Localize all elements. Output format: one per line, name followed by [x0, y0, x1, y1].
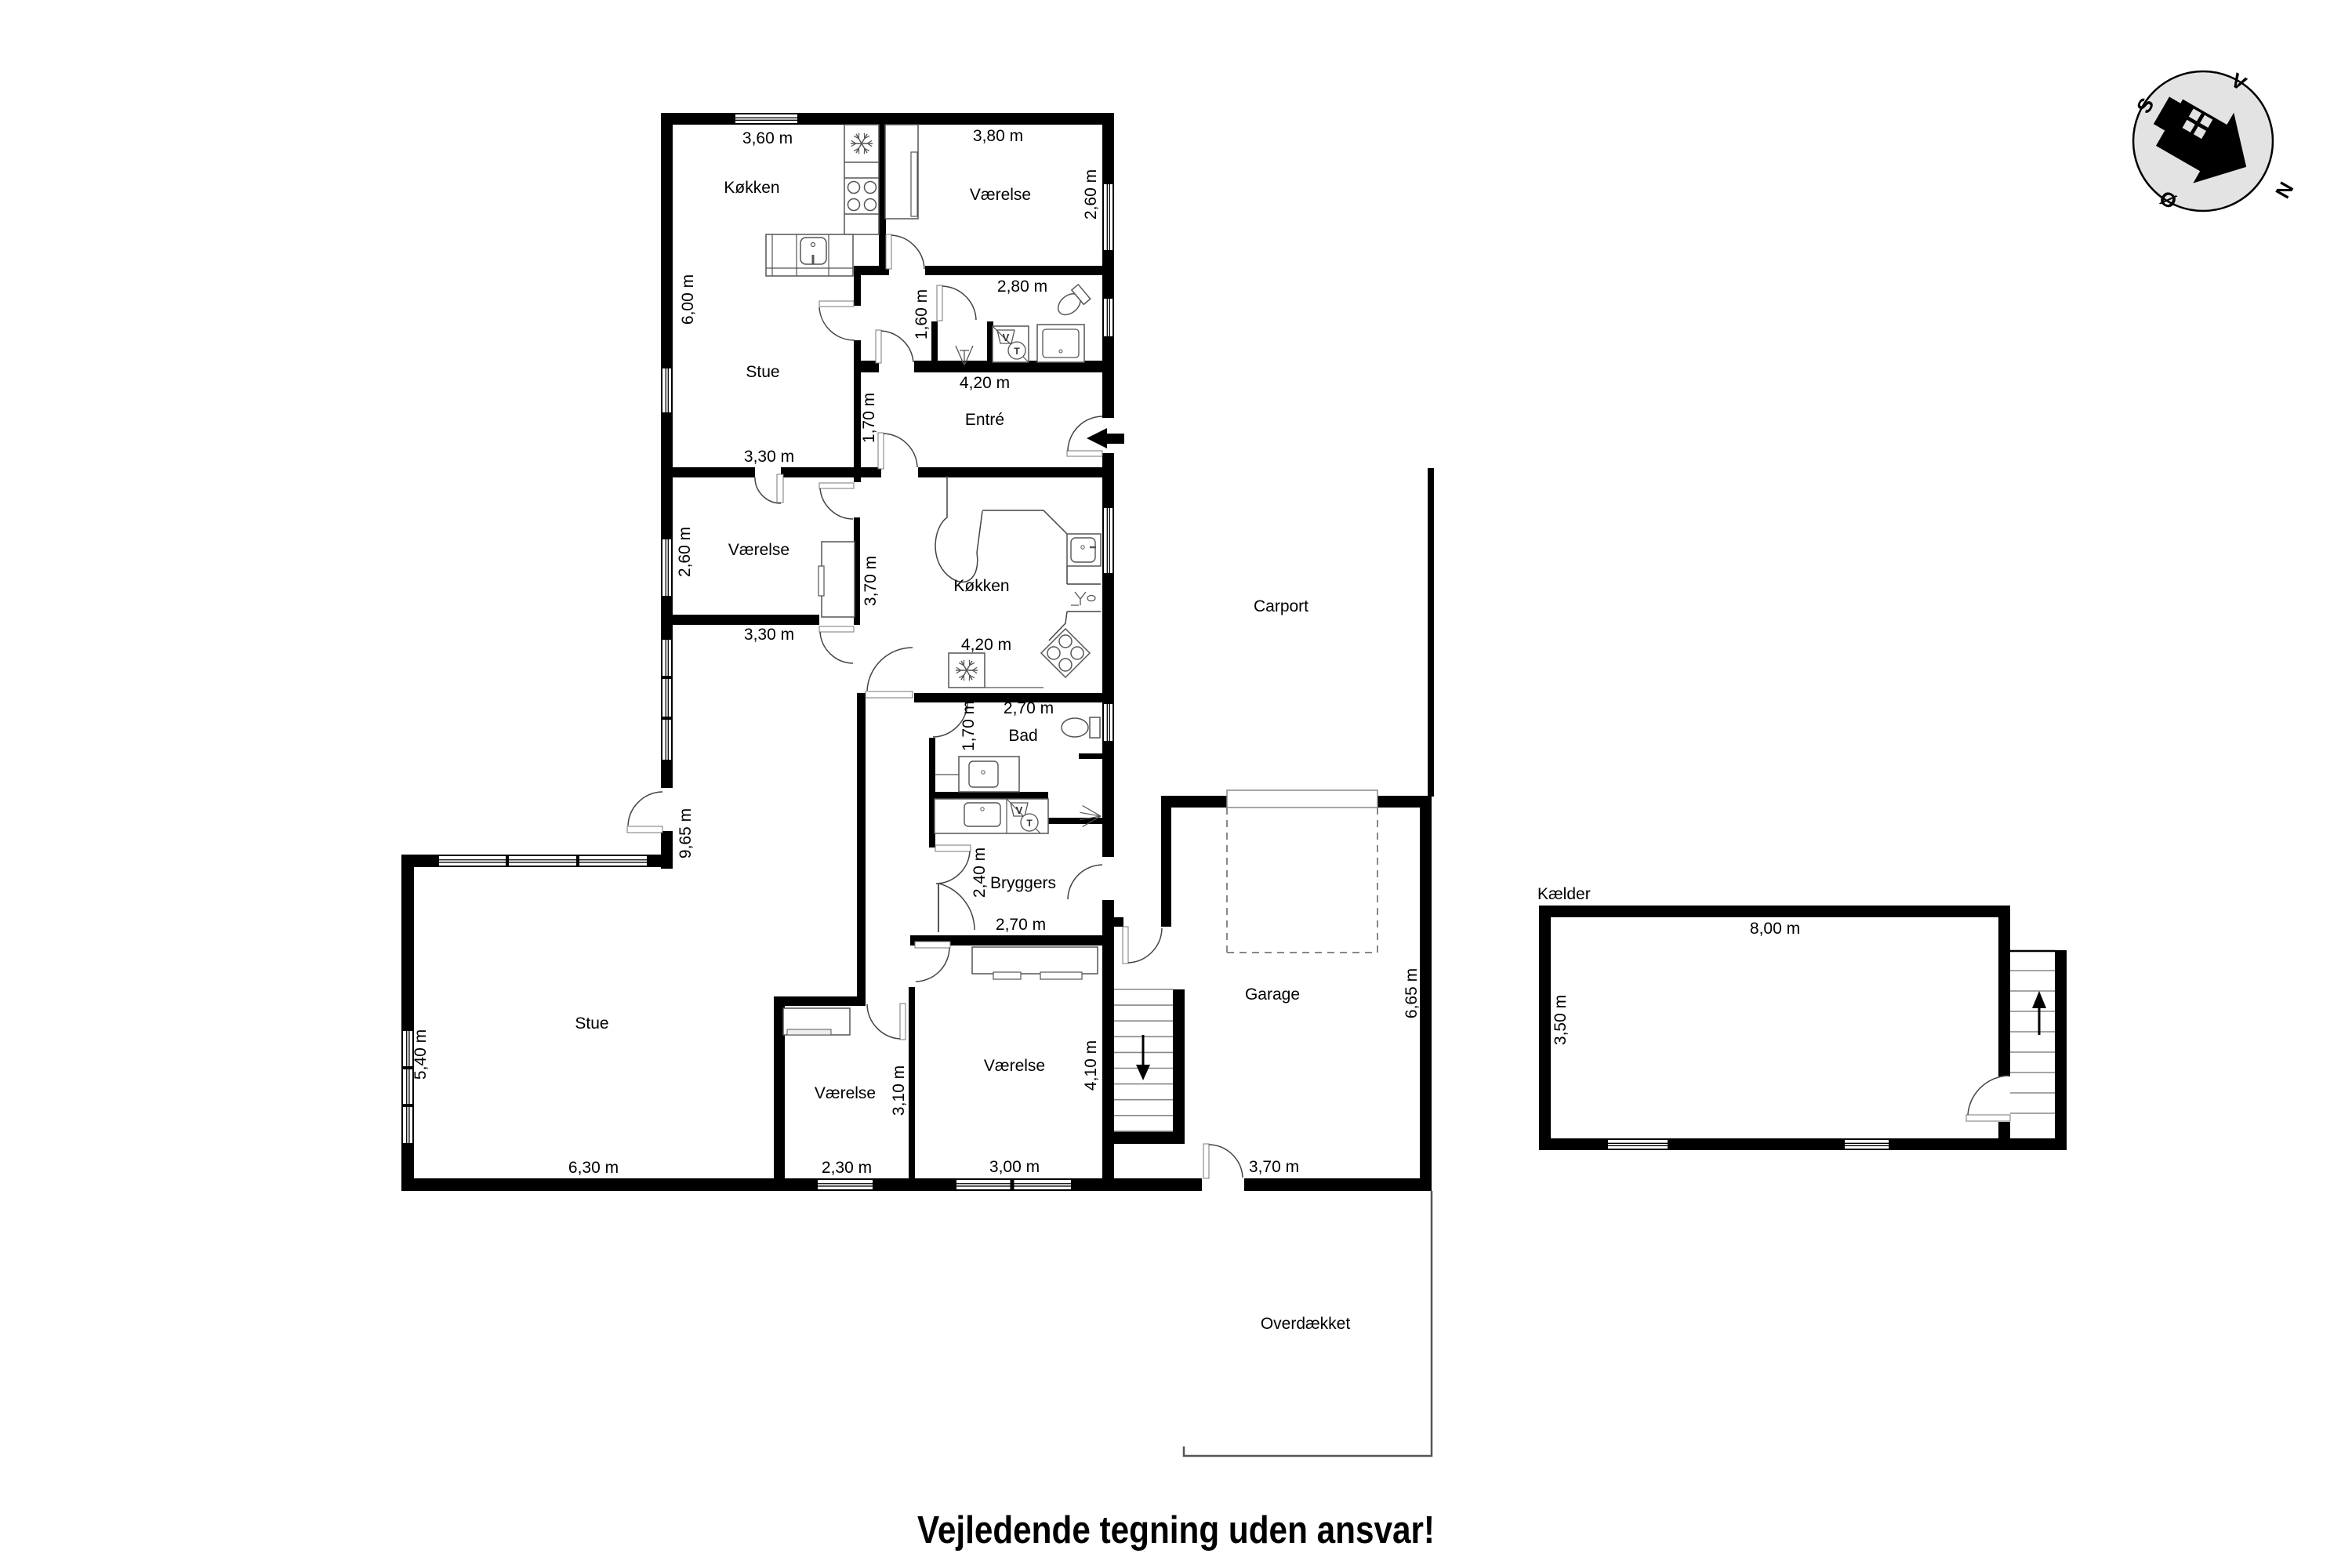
svg-text:V: V: [1016, 804, 1023, 816]
svg-text:5,40 m: 5,40 m: [412, 1029, 430, 1080]
svg-text:Værelse: Værelse: [970, 186, 1031, 204]
svg-text:Carport: Carport: [1254, 597, 1308, 615]
svg-text:Stue: Stue: [746, 363, 779, 381]
svg-text:3,30 m: 3,30 m: [744, 448, 794, 466]
svg-text:6,00 m: 6,00 m: [679, 274, 697, 325]
svg-text:2,30 m: 2,30 m: [822, 1159, 872, 1177]
svg-text:2,80 m: 2,80 m: [997, 278, 1047, 296]
svg-text:Værelse: Værelse: [984, 1057, 1045, 1075]
svg-text:2,60 m: 2,60 m: [676, 527, 694, 577]
svg-text:3,50 m: 3,50 m: [1552, 995, 1570, 1045]
svg-text:T: T: [1026, 818, 1033, 829]
svg-text:3,80 m: 3,80 m: [973, 127, 1023, 145]
svg-text:2,70 m: 2,70 m: [996, 916, 1046, 934]
svg-text:1,60 m: 1,60 m: [913, 289, 931, 339]
svg-text:Køkken: Køkken: [724, 179, 779, 197]
svg-text:2,40 m: 2,40 m: [971, 848, 989, 898]
svg-text:3,70 m: 3,70 m: [862, 556, 880, 606]
svg-text:Overdækket: Overdækket: [1261, 1315, 1351, 1333]
svg-text:V: V: [1003, 332, 1010, 343]
svg-text:Kælder: Kælder: [1537, 885, 1591, 903]
svg-text:Værelse: Værelse: [728, 541, 789, 559]
svg-text:2,70 m: 2,70 m: [1004, 699, 1054, 717]
svg-text:Værelse: Værelse: [815, 1084, 876, 1102]
svg-text:6,65 m: 6,65 m: [1403, 968, 1421, 1018]
svg-text:1,70 m: 1,70 m: [860, 393, 878, 443]
svg-text:Stue: Stue: [575, 1014, 608, 1033]
svg-text:6,30 m: 6,30 m: [568, 1159, 619, 1177]
svg-text:T: T: [1014, 346, 1020, 357]
svg-text:8,00 m: 8,00 m: [1750, 920, 1800, 938]
svg-text:Garage: Garage: [1245, 985, 1300, 1004]
svg-text:4,10 m: 4,10 m: [1082, 1040, 1100, 1091]
svg-text:1,70 m: 1,70 m: [960, 701, 978, 751]
svg-text:3,00 m: 3,00 m: [989, 1158, 1040, 1176]
svg-text:Bryggers: Bryggers: [990, 874, 1056, 892]
svg-text:4,20 m: 4,20 m: [960, 374, 1010, 392]
svg-text:3,30 m: 3,30 m: [744, 626, 794, 644]
svg-text:9,65 m: 9,65 m: [677, 808, 695, 858]
svg-text:Vejledende tegning uden ansvar: Vejledende tegning uden ansvar!: [917, 1509, 1435, 1552]
svg-text:Bad: Bad: [1008, 727, 1037, 745]
svg-text:4,20 m: 4,20 m: [961, 636, 1011, 654]
svg-text:Køkken: Køkken: [953, 577, 1009, 595]
svg-text:Entré: Entré: [965, 411, 1004, 429]
svg-text:3,60 m: 3,60 m: [742, 129, 793, 147]
svg-text:3,70 m: 3,70 m: [1249, 1158, 1299, 1176]
svg-text:2,60 m: 2,60 m: [1082, 169, 1100, 220]
svg-text:3,10 m: 3,10 m: [890, 1065, 908, 1116]
